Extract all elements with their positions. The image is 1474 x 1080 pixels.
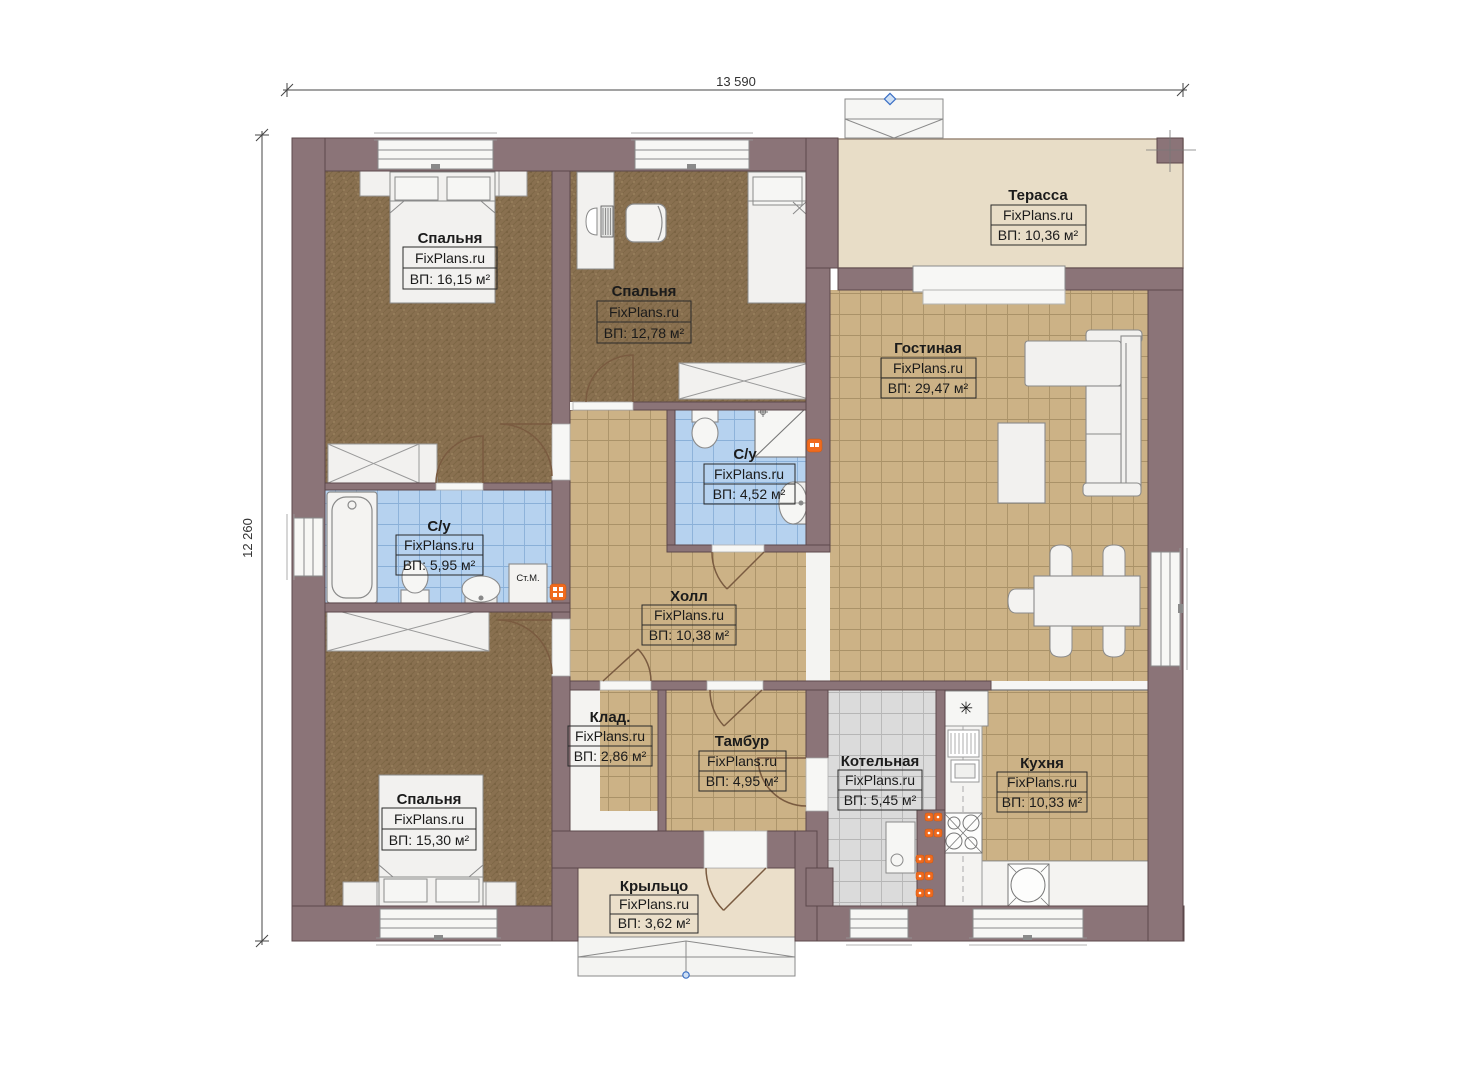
- svg-text:Ст.М.: Ст.М.: [516, 573, 539, 584]
- svg-text:С/у: С/у: [733, 446, 757, 463]
- svg-text:Терасса: Терасса: [1008, 187, 1068, 204]
- svg-text:FixPlans.ru: FixPlans.ru: [575, 728, 645, 744]
- svg-text:ВП: 10,36 м²: ВП: 10,36 м²: [998, 227, 1079, 243]
- svg-text:FixPlans.ru: FixPlans.ru: [394, 811, 464, 827]
- svg-text:Спальня: Спальня: [612, 283, 677, 300]
- svg-text:ВП: 10,33 м²: ВП: 10,33 м²: [1002, 794, 1083, 810]
- svg-text:Гостиная: Гостиная: [894, 340, 962, 357]
- svg-text:FixPlans.ru: FixPlans.ru: [609, 304, 679, 320]
- svg-text:FixPlans.ru: FixPlans.ru: [714, 466, 784, 482]
- svg-text:FixPlans.ru: FixPlans.ru: [415, 250, 485, 266]
- svg-text:FixPlans.ru: FixPlans.ru: [845, 772, 915, 788]
- svg-text:FixPlans.ru: FixPlans.ru: [893, 360, 963, 376]
- svg-text:ВП: 15,30 м²: ВП: 15,30 м²: [389, 832, 470, 848]
- svg-text:ВП: 5,45 м²: ВП: 5,45 м²: [844, 792, 917, 808]
- svg-text:ВП: 2,86 м²: ВП: 2,86 м²: [574, 748, 647, 764]
- svg-text:✳: ✳: [959, 699, 973, 718]
- svg-text:FixPlans.ru: FixPlans.ru: [1007, 774, 1077, 790]
- svg-text:Тамбур: Тамбур: [715, 733, 769, 750]
- svg-text:ВП: 4,95 м²: ВП: 4,95 м²: [706, 773, 779, 789]
- svg-text:ВП: 10,38 м²: ВП: 10,38 м²: [649, 627, 730, 643]
- svg-text:ВП: 16,15 м²: ВП: 16,15 м²: [410, 271, 491, 287]
- svg-text:12 260: 12 260: [240, 518, 255, 558]
- svg-text:Крыльцо: Крыльцо: [620, 878, 688, 895]
- svg-text:ВП: 3,62 м²: ВП: 3,62 м²: [618, 915, 691, 931]
- svg-text:FixPlans.ru: FixPlans.ru: [1003, 207, 1073, 223]
- svg-text:FixPlans.ru: FixPlans.ru: [404, 537, 474, 553]
- svg-text:13 590: 13 590: [716, 74, 756, 89]
- svg-text:Клад.: Клад.: [590, 709, 631, 726]
- svg-text:Котельная: Котельная: [841, 753, 920, 770]
- svg-text:Кухня: Кухня: [1020, 755, 1064, 772]
- svg-text:Спальня: Спальня: [397, 791, 462, 808]
- svg-text:ВП: 29,47 м²: ВП: 29,47 м²: [888, 380, 969, 396]
- svg-text:ВП: 12,78 м²: ВП: 12,78 м²: [604, 325, 685, 341]
- svg-text:FixPlans.ru: FixPlans.ru: [707, 753, 777, 769]
- svg-text:ВП: 4,52 м²: ВП: 4,52 м²: [713, 486, 786, 502]
- svg-text:Холл: Холл: [670, 588, 708, 605]
- svg-text:ВП: 5,95 м²: ВП: 5,95 м²: [403, 557, 476, 573]
- svg-text:FixPlans.ru: FixPlans.ru: [619, 896, 689, 912]
- svg-text:FixPlans.ru: FixPlans.ru: [654, 607, 724, 623]
- svg-text:С/у: С/у: [427, 518, 451, 535]
- svg-text:Спальня: Спальня: [418, 230, 483, 247]
